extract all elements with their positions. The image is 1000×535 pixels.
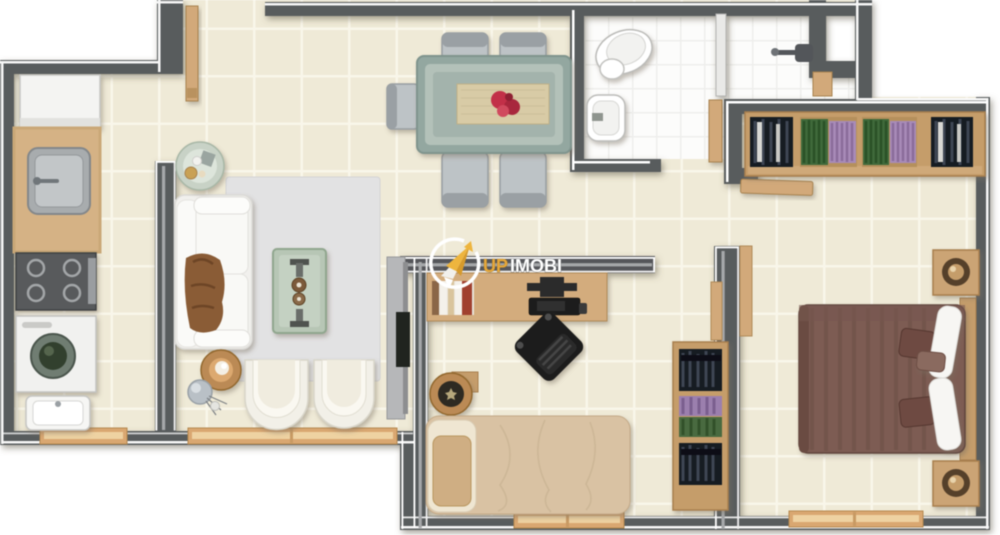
svg-text:UP: UP (483, 256, 508, 276)
svg-text:IMOBI: IMOBI (510, 256, 562, 276)
